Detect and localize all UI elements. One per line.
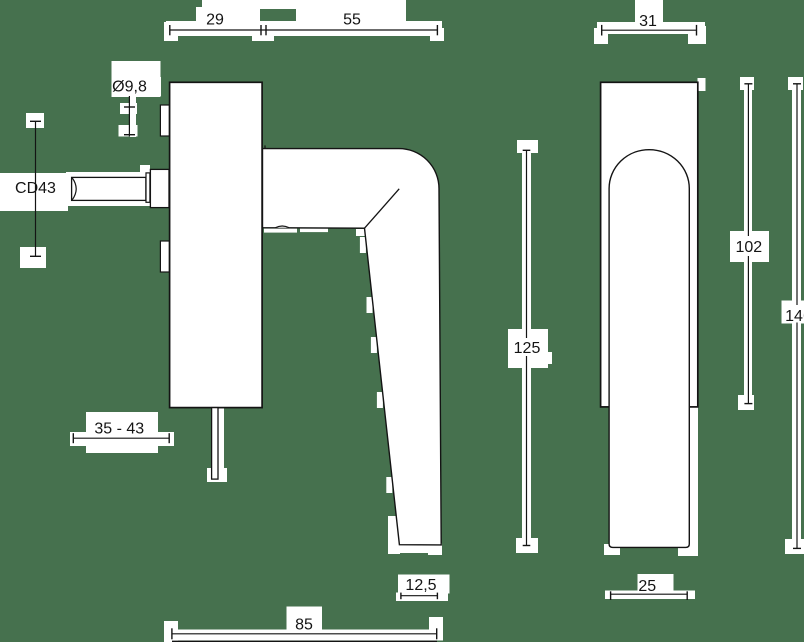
svg-text:35 - 43: 35 - 43 — [94, 421, 144, 438]
svg-text:146: 146 — [785, 308, 804, 325]
svg-text:12,5: 12,5 — [405, 577, 436, 594]
svg-text:CD43: CD43 — [15, 180, 56, 197]
svg-text:102: 102 — [735, 239, 762, 256]
svg-text:25: 25 — [638, 578, 656, 595]
svg-text:85: 85 — [295, 616, 313, 633]
svg-text:55: 55 — [343, 12, 361, 29]
svg-text:125: 125 — [514, 340, 541, 357]
svg-text:31: 31 — [639, 13, 657, 30]
svg-text:29: 29 — [206, 12, 224, 29]
svg-text:Ø9,8: Ø9,8 — [112, 79, 147, 96]
